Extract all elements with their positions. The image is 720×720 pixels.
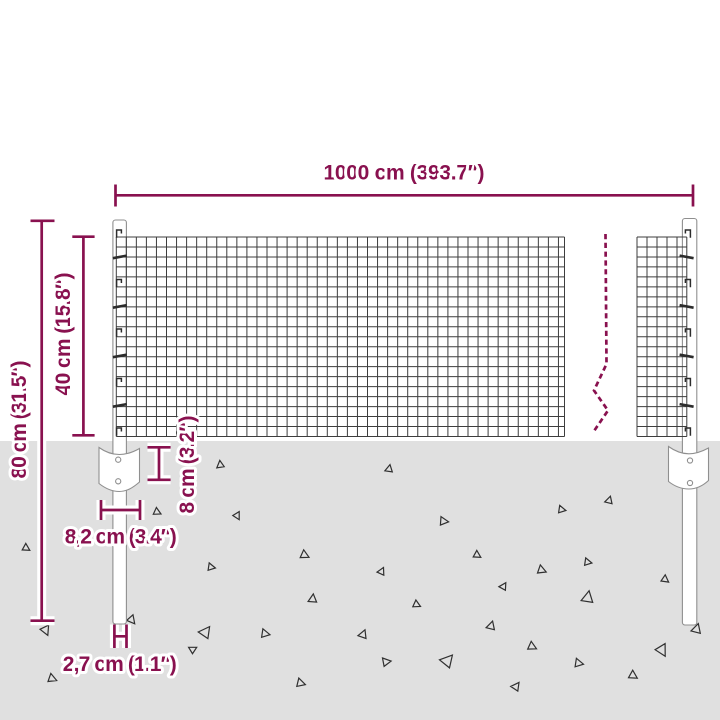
svg-text:1000 cm (393.7″): 1000 cm (393.7″) <box>324 162 485 185</box>
svg-text:8,2 cm (3.4″): 8,2 cm (3.4″) <box>65 526 177 549</box>
svg-text:8 cm (3.2″): 8 cm (3.2″) <box>176 416 199 514</box>
svg-text:2,7 cm (1.1″): 2,7 cm (1.1″) <box>63 653 177 676</box>
svg-text:80 cm (31.5″): 80 cm (31.5″) <box>8 361 31 479</box>
svg-text:40 cm (15.8″): 40 cm (15.8″) <box>52 273 75 396</box>
